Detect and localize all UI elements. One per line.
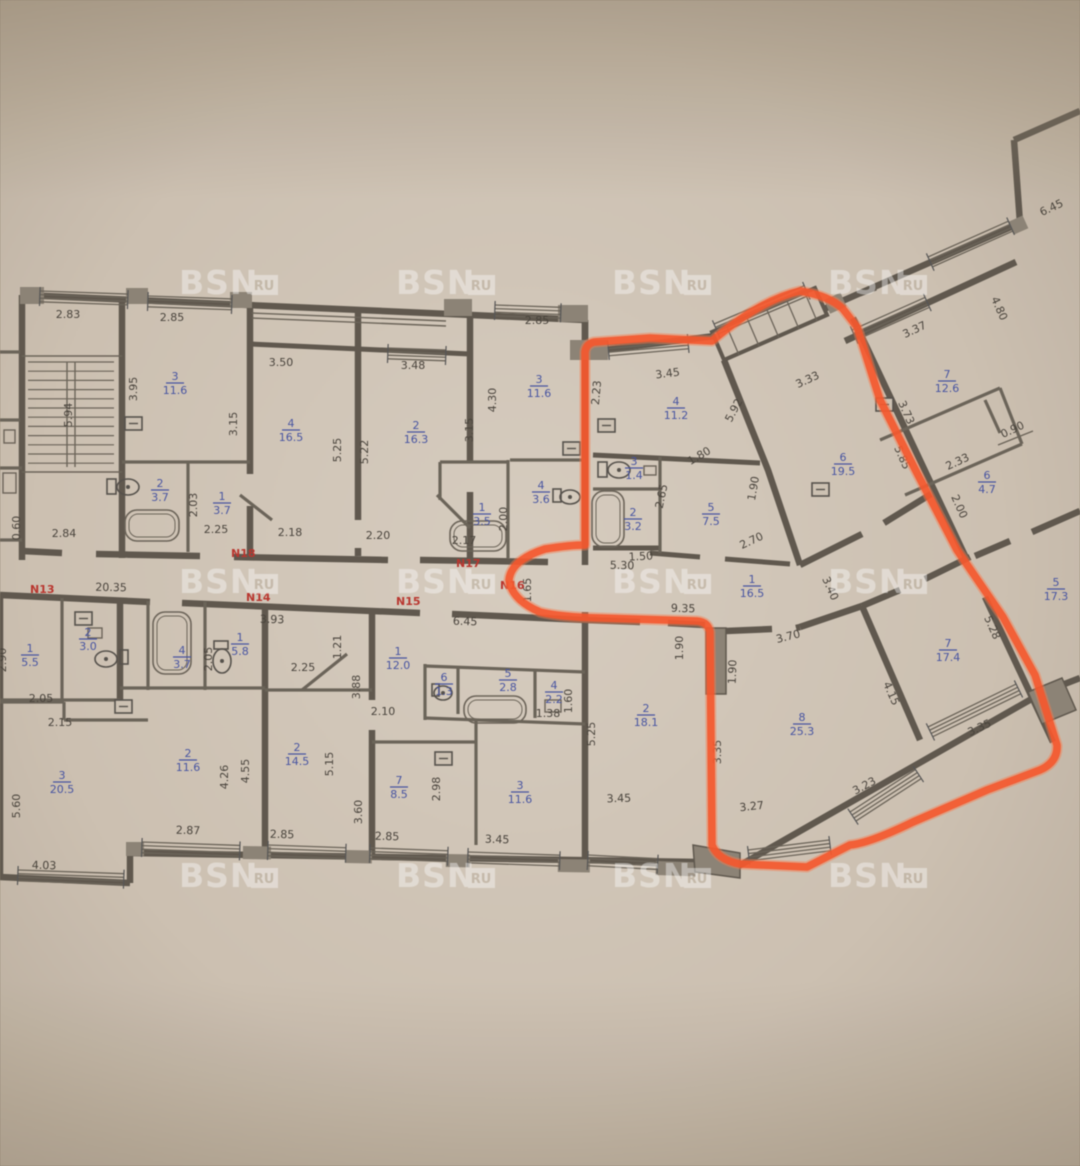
dimension-label: 2.25 — [204, 523, 229, 536]
apartment-number: N13 — [30, 583, 55, 596]
dimension-label: 3.15 — [227, 412, 240, 437]
dimension-label: 3.93 — [260, 613, 285, 626]
svg-text:RU: RU — [254, 872, 275, 887]
svg-text:19.5: 19.5 — [831, 465, 856, 478]
svg-text:16.5: 16.5 — [279, 431, 304, 444]
svg-text:2.2: 2.2 — [545, 693, 563, 706]
svg-text:11.6: 11.6 — [527, 387, 552, 400]
dimension-label: 2.83 — [56, 308, 81, 321]
dimension-label: 2.85 — [525, 314, 550, 327]
dimension-label: 2.17 — [452, 534, 477, 547]
svg-text:1: 1 — [395, 645, 402, 658]
svg-text:2: 2 — [85, 626, 92, 639]
svg-text:12.0: 12.0 — [386, 659, 411, 672]
svg-text:3: 3 — [631, 455, 638, 468]
dimension-label: 5.15 — [323, 752, 336, 777]
dimension-label: 2.90 — [0, 648, 9, 673]
svg-text:4: 4 — [673, 395, 680, 408]
svg-text:1.4: 1.4 — [625, 469, 643, 482]
svg-text:6: 6 — [441, 671, 448, 684]
svg-text:3.2: 3.2 — [624, 520, 642, 533]
dimension-label: 3.45 — [606, 792, 631, 806]
svg-text:4: 4 — [179, 644, 186, 657]
svg-text:3.7: 3.7 — [213, 504, 231, 517]
dimension-label: 2.85 — [270, 828, 295, 841]
dimension-label: 2.20 — [366, 529, 391, 542]
dimension-label: 2.85 — [375, 830, 400, 843]
svg-text:7: 7 — [396, 774, 403, 787]
svg-text:RU: RU — [254, 279, 275, 294]
svg-text:2: 2 — [185, 747, 192, 760]
svg-text:5: 5 — [505, 667, 512, 680]
svg-text:RU: RU — [471, 872, 492, 887]
svg-text:17.3: 17.3 — [1044, 590, 1069, 603]
dimension-label: 3.15 — [463, 418, 476, 443]
dimension-label: 9.35 — [671, 602, 696, 616]
dimension-label: 4.30 — [486, 388, 499, 413]
dimension-label: 5.60 — [10, 794, 23, 819]
svg-text:6: 6 — [840, 451, 847, 464]
svg-text:25.3: 25.3 — [790, 725, 815, 738]
svg-text:4.7: 4.7 — [978, 483, 996, 496]
photo-bottom-shadow — [0, 980, 1080, 1166]
svg-text:7.5: 7.5 — [702, 515, 720, 528]
svg-text:1: 1 — [219, 490, 226, 503]
dimension-label: 5.25 — [331, 438, 344, 463]
dimension-label: 1.60 — [562, 689, 575, 714]
svg-text:2: 2 — [643, 702, 650, 715]
floorplan-photo: 311.623.713.7416.5216.3311.613.543.6411.… — [0, 0, 1080, 1166]
svg-text:RU: RU — [903, 279, 924, 294]
svg-text:BSN: BSN — [179, 263, 259, 302]
svg-text:BSN: BSN — [612, 263, 692, 302]
dimension-label: 2.23 — [589, 380, 604, 406]
dimension-label: 1.90 — [673, 636, 686, 661]
svg-text:BSN: BSN — [396, 562, 476, 601]
svg-text:3.7: 3.7 — [151, 491, 169, 504]
dimension-label: 2.25 — [291, 661, 316, 674]
floor-plan: 311.623.713.7416.5216.3311.613.543.6411.… — [0, 0, 1080, 1166]
svg-text:BSN: BSN — [396, 263, 476, 302]
dimension-label: 5.94 — [62, 403, 75, 428]
dimension-label: 6.45 — [453, 615, 478, 629]
svg-text:11.6: 11.6 — [163, 384, 188, 397]
svg-text:3: 3 — [59, 769, 66, 782]
dimension-label: 4.55 — [239, 759, 252, 784]
dimension-label: 0.60 — [10, 516, 23, 541]
svg-text:3: 3 — [536, 373, 543, 386]
dimension-label: 2.03 — [187, 493, 200, 518]
svg-text:3: 3 — [172, 370, 179, 383]
dimension-label: 2.98 — [430, 777, 443, 802]
svg-text:6: 6 — [984, 469, 991, 482]
dimension-label: 20.35 — [95, 581, 127, 595]
dimension-label: 2.18 — [278, 526, 303, 539]
svg-text:3.0: 3.0 — [79, 640, 97, 653]
dimension-label: 2.87 — [176, 824, 201, 837]
svg-text:RU: RU — [471, 578, 492, 593]
svg-text:RU: RU — [471, 279, 492, 294]
svg-text:5: 5 — [708, 501, 715, 514]
svg-text:3.6: 3.6 — [532, 493, 550, 506]
dimension-label: 3.95 — [127, 377, 140, 402]
dimension-label: 5.22 — [358, 440, 371, 465]
svg-text:1: 1 — [749, 573, 756, 586]
svg-text:BSN: BSN — [828, 562, 908, 601]
dimension-label: 3.45 — [485, 833, 510, 847]
dimension-label: 3.27 — [739, 799, 765, 814]
svg-text:11.2: 11.2 — [664, 409, 689, 422]
svg-text:17.4: 17.4 — [936, 651, 961, 664]
svg-text:4: 4 — [288, 417, 295, 430]
svg-text:20.5: 20.5 — [50, 783, 75, 796]
dimension-label: 2.05 — [29, 692, 54, 705]
svg-text:BSN: BSN — [396, 856, 476, 895]
svg-text:5.8: 5.8 — [231, 645, 249, 658]
svg-text:1: 1 — [27, 642, 34, 655]
dimension-label: 2.10 — [371, 705, 396, 718]
svg-text:RU: RU — [903, 872, 924, 887]
svg-text:2: 2 — [630, 506, 637, 519]
svg-text:3: 3 — [517, 779, 524, 792]
svg-text:14.5: 14.5 — [285, 755, 310, 768]
dimension-label: 3.48 — [401, 359, 426, 372]
svg-text:BSN: BSN — [612, 856, 692, 895]
svg-text:8.5: 8.5 — [390, 788, 408, 801]
svg-text:BSN: BSN — [612, 562, 692, 601]
svg-text:BSN: BSN — [179, 856, 259, 895]
svg-text:11.6: 11.6 — [508, 793, 533, 806]
dimension-label: 1.21 — [331, 635, 344, 660]
svg-text:BSN: BSN — [828, 263, 908, 302]
svg-text:RU: RU — [903, 578, 924, 593]
svg-text:2: 2 — [157, 477, 164, 490]
svg-text:1.3: 1.3 — [435, 685, 453, 698]
dimension-label: 2.00 — [497, 507, 510, 532]
svg-text:11.6: 11.6 — [176, 761, 201, 774]
dimension-label: 3.50 — [269, 356, 294, 369]
svg-text:BSN: BSN — [179, 562, 259, 601]
svg-text:3.5: 3.5 — [473, 515, 491, 528]
dimension-label: 2.84 — [52, 527, 77, 540]
dimension-label: 1.38 — [536, 707, 561, 720]
svg-text:16.5: 16.5 — [740, 587, 765, 600]
dimension-label: 4.26 — [218, 765, 231, 790]
svg-text:RU: RU — [687, 578, 708, 593]
svg-text:3.7: 3.7 — [173, 658, 191, 671]
photo-top-shadow — [0, 0, 1080, 200]
svg-text:2: 2 — [413, 419, 420, 432]
svg-text:RU: RU — [687, 279, 708, 294]
svg-text:12.6: 12.6 — [935, 382, 960, 395]
svg-text:18.1: 18.1 — [634, 716, 659, 729]
svg-text:5.5: 5.5 — [21, 656, 39, 669]
svg-text:7: 7 — [945, 637, 952, 650]
svg-text:2: 2 — [294, 741, 301, 754]
dimension-label: 2.85 — [160, 311, 185, 324]
dimension-label: 3.88 — [350, 675, 363, 700]
svg-text:BSN: BSN — [828, 856, 908, 895]
dimension-label: 2.05 — [202, 647, 215, 672]
svg-text:2.8: 2.8 — [499, 681, 517, 694]
svg-text:1: 1 — [237, 631, 244, 644]
dimension-label: 4.03 — [32, 859, 57, 872]
dimension-label: 2.15 — [48, 716, 73, 729]
dimension-label: 1.90 — [726, 659, 740, 684]
svg-text:RU: RU — [254, 578, 275, 593]
svg-text:5: 5 — [1053, 576, 1060, 589]
apartment-number: N18 — [231, 547, 256, 560]
svg-text:8: 8 — [799, 711, 806, 724]
svg-text:4: 4 — [551, 679, 558, 692]
svg-text:4: 4 — [538, 479, 545, 492]
svg-text:7: 7 — [944, 368, 951, 381]
dimension-label: 5.25 — [585, 722, 598, 747]
dimension-label: 3.60 — [352, 800, 365, 825]
svg-text:1: 1 — [479, 501, 486, 514]
svg-text:RU: RU — [687, 872, 708, 887]
svg-text:16.3: 16.3 — [404, 433, 429, 446]
